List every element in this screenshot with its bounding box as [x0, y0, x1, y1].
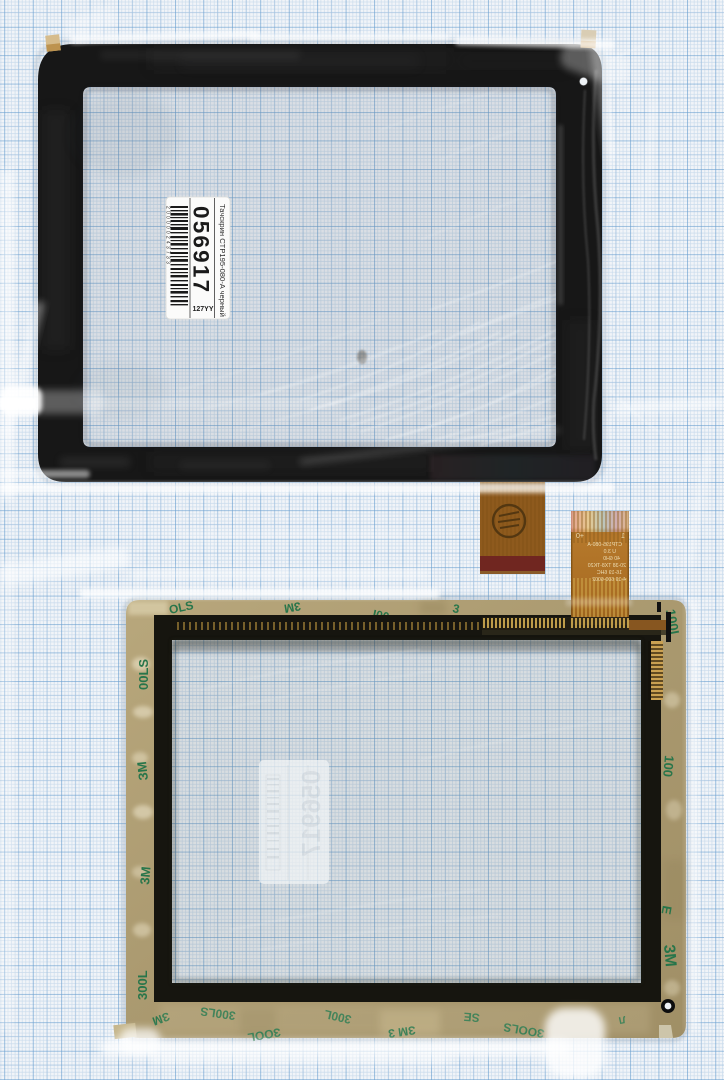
svg-text:127YY: 127YY	[193, 306, 214, 313]
svg-text:056917: 056917	[189, 206, 214, 294]
svg-text:U 3.0: U 3.0	[603, 549, 616, 555]
svg-text:CTP195-080-A: CTP195-080-A	[587, 542, 622, 548]
svg-text:ЗМ: ЗМ	[134, 761, 151, 781]
svg-text:+0: +0	[576, 533, 584, 540]
svg-text:100: 100	[660, 755, 677, 778]
svg-text:3M: 3M	[660, 944, 679, 968]
svg-text:3M: 3M	[283, 599, 302, 616]
svg-text:Тачскрин CTP195-080-A черный: Тачскрин CTP195-080-A черный	[218, 204, 227, 317]
svg-text:40 6H0: 40 6H0	[603, 556, 620, 562]
svg-text:2000002437З3: 2000002437З3	[165, 206, 171, 266]
svg-text:3M: 3M	[137, 866, 154, 885]
svg-text:4-19 600-6002: 4-19 600-6002	[592, 577, 626, 583]
svg-text:20-38 TX8-TK20: 20-38 TX8-TK20	[588, 563, 626, 569]
svg-text:056917: 056917	[296, 770, 326, 857]
svg-text:00LS: 00LS	[136, 659, 151, 690]
svg-text:16-19 6HC: 16-19 6HC	[597, 570, 622, 576]
svg-text:300L: 300L	[135, 970, 150, 1000]
svg-text:1: 1	[621, 533, 625, 540]
